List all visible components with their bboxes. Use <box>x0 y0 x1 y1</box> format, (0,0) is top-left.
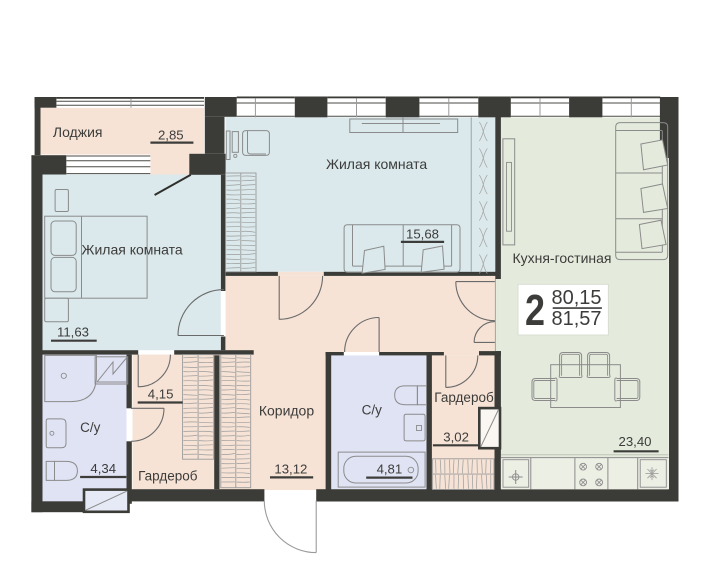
svg-text:80,15: 80,15 <box>551 287 601 309</box>
svg-text:2,85: 2,85 <box>158 128 184 143</box>
svg-text:Жилая комната: Жилая комната <box>326 156 427 172</box>
svg-text:4,34: 4,34 <box>90 461 116 476</box>
svg-text:4,15: 4,15 <box>148 387 174 402</box>
svg-text:Лоджия: Лоджия <box>53 124 103 140</box>
svg-text:С/у: С/у <box>362 402 383 417</box>
svg-text:Жилая комната: Жилая комната <box>82 241 183 257</box>
svg-text:Коридор: Коридор <box>259 403 315 419</box>
svg-text:4,81: 4,81 <box>377 462 403 477</box>
svg-text:3,02: 3,02 <box>443 430 469 445</box>
svg-text:Кухня-гостиная: Кухня-гостиная <box>512 250 611 266</box>
svg-text:Гардероб: Гардероб <box>138 469 198 484</box>
svg-text:15,68: 15,68 <box>406 227 439 242</box>
svg-text:13,12: 13,12 <box>274 462 307 477</box>
svg-text:81,57: 81,57 <box>551 308 601 330</box>
svg-text:23,40: 23,40 <box>618 434 651 449</box>
svg-text:С/у: С/у <box>80 420 101 435</box>
svg-text:Гардероб: Гардероб <box>434 390 494 405</box>
svg-text:11,63: 11,63 <box>57 325 89 340</box>
svg-text:2: 2 <box>525 286 545 335</box>
